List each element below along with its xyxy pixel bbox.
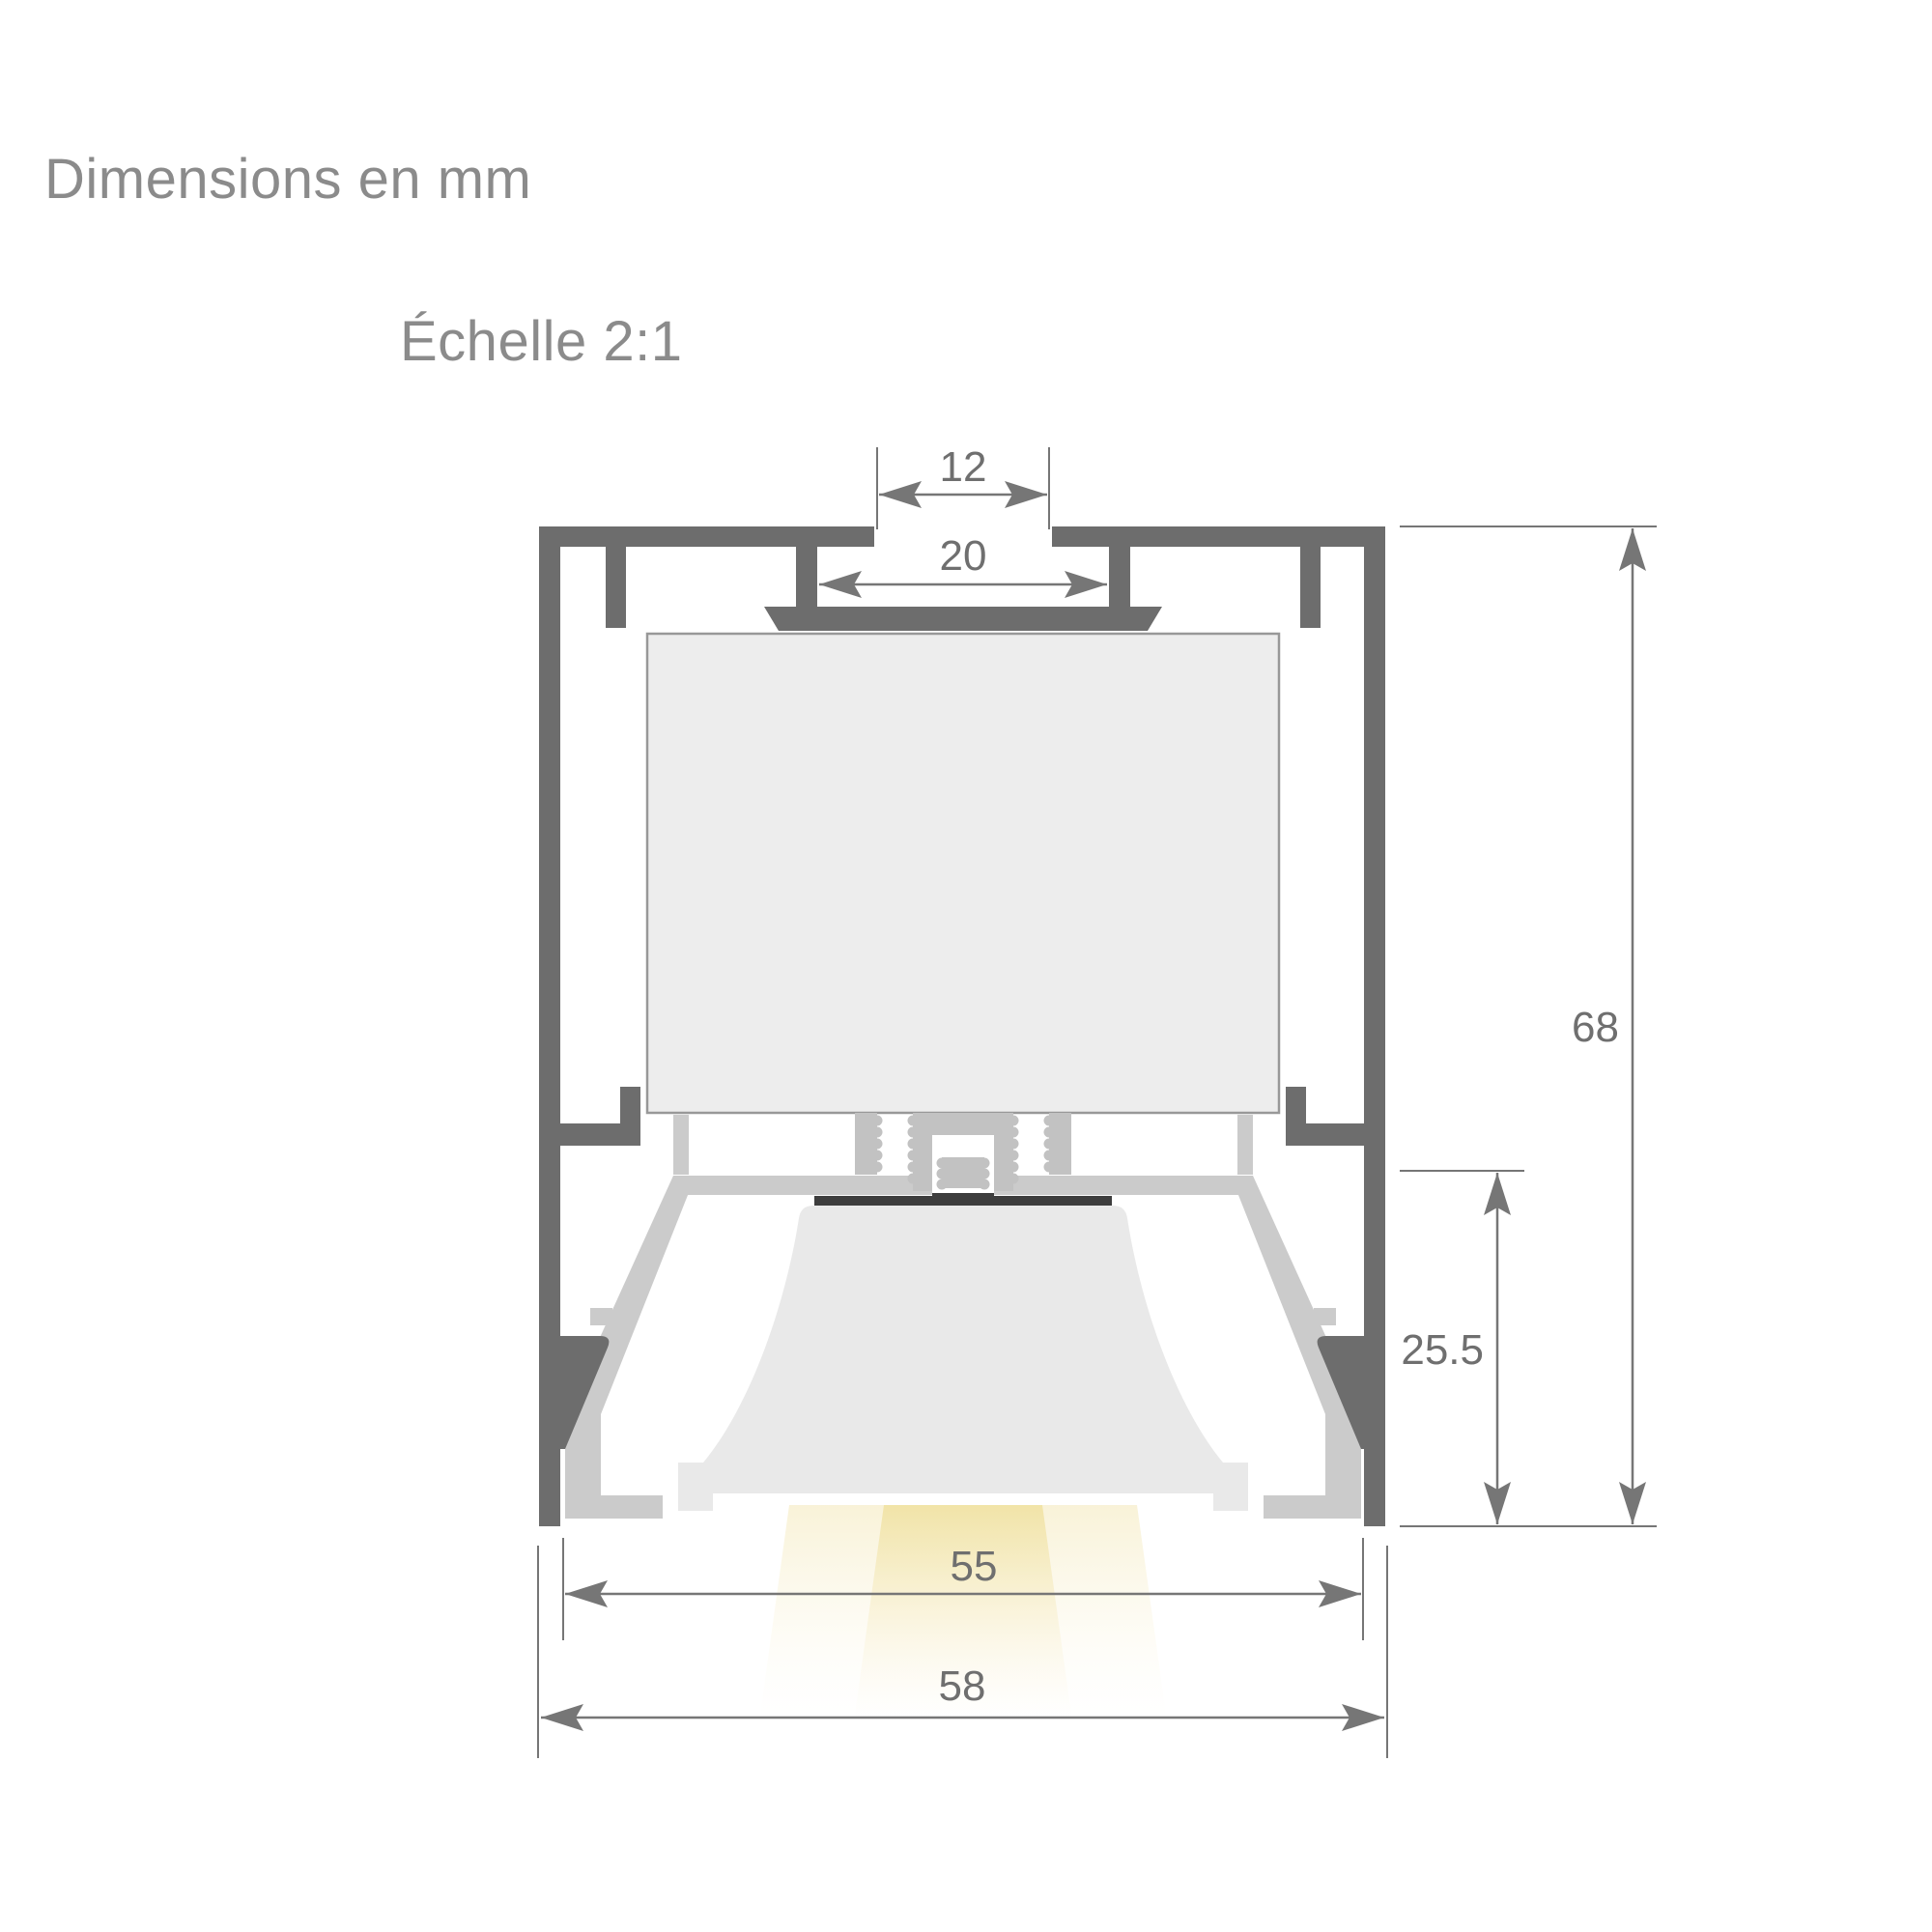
profile-top-plate-right [1052,526,1385,547]
mid-hook-left [560,1087,640,1146]
suspension-slot-wall-left [796,547,817,616]
carrier-rail-right [1237,1115,1253,1175]
dimension-label-25-5: 25.5 [1401,1326,1484,1374]
profile-wall-right [1364,526,1385,1526]
dimension-label-20: 20 [940,532,987,580]
dimension-label-58: 58 [939,1662,986,1710]
carrier-clip-left [590,1308,612,1325]
top-hook-right [1300,547,1321,628]
carrier-foot-left [565,1414,663,1519]
carrier-foot-right [1264,1414,1361,1519]
dimension-label-68: 68 [1572,1004,1619,1051]
mid-hook-right [1286,1087,1366,1146]
carrier-rail-left [673,1115,689,1175]
technical-drawing-page: Dimensions en mm Échelle 2:1 [0,0,1932,1932]
driver-compartment-box [647,634,1279,1113]
profile-cross-section-drawing: 12 20 68 25.5 55 58 [0,0,1932,1932]
suspension-slot-bottom [764,607,1162,631]
diffuser-lens [678,1206,1248,1511]
profile-top-plate-left [539,526,874,547]
carrier-clip-right [1314,1308,1336,1325]
dimension-label-12: 12 [940,443,987,491]
profile-wall-left [539,526,560,1526]
top-hook-left [606,547,626,628]
suspension-slot-wall-right [1109,547,1130,616]
thread-screw-rod [942,1157,984,1188]
led-bar [814,1196,1112,1207]
dimension-label-55: 55 [951,1543,998,1590]
